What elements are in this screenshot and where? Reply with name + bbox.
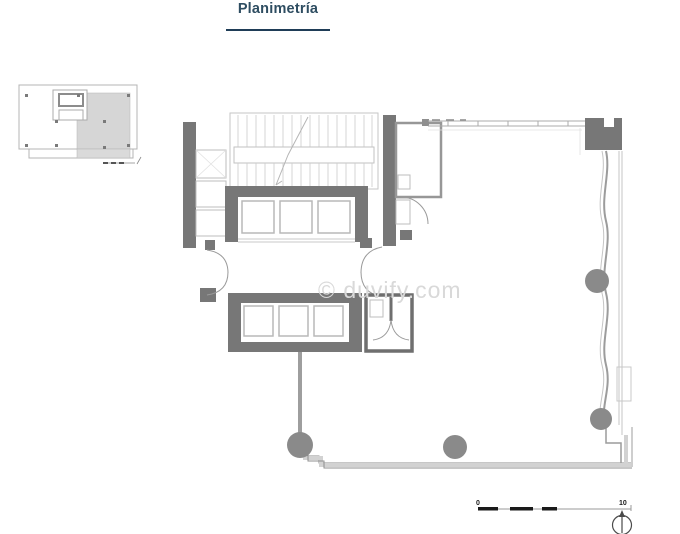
scale-bar: 0 10 <box>476 500 631 511</box>
overview-plan-thumbnail[interactable] <box>15 78 150 168</box>
page-title: Planimetría <box>222 1 334 17</box>
right-glazing <box>600 151 631 435</box>
scale-end-label: 10 <box>619 500 627 507</box>
top-window-wall <box>422 119 585 155</box>
section-header: Planimetría <box>222 1 334 17</box>
floor-plan-svg: © duvify.com 0 10 <box>170 105 640 534</box>
elevator-bank-1 <box>225 186 368 242</box>
wc-room <box>366 295 412 351</box>
overview-plan-svg <box>15 78 150 168</box>
corner-column <box>585 118 622 150</box>
staircase <box>230 113 378 189</box>
title-underline <box>226 29 330 31</box>
main-floor-plan[interactable]: © duvify.com 0 10 <box>170 105 640 534</box>
scale-start-label: 0 <box>476 500 480 507</box>
north-arrow-icon <box>613 510 632 534</box>
watermark-text: © duvify.com <box>318 277 462 303</box>
thumb-core <box>53 90 87 120</box>
left-wall <box>183 122 228 302</box>
